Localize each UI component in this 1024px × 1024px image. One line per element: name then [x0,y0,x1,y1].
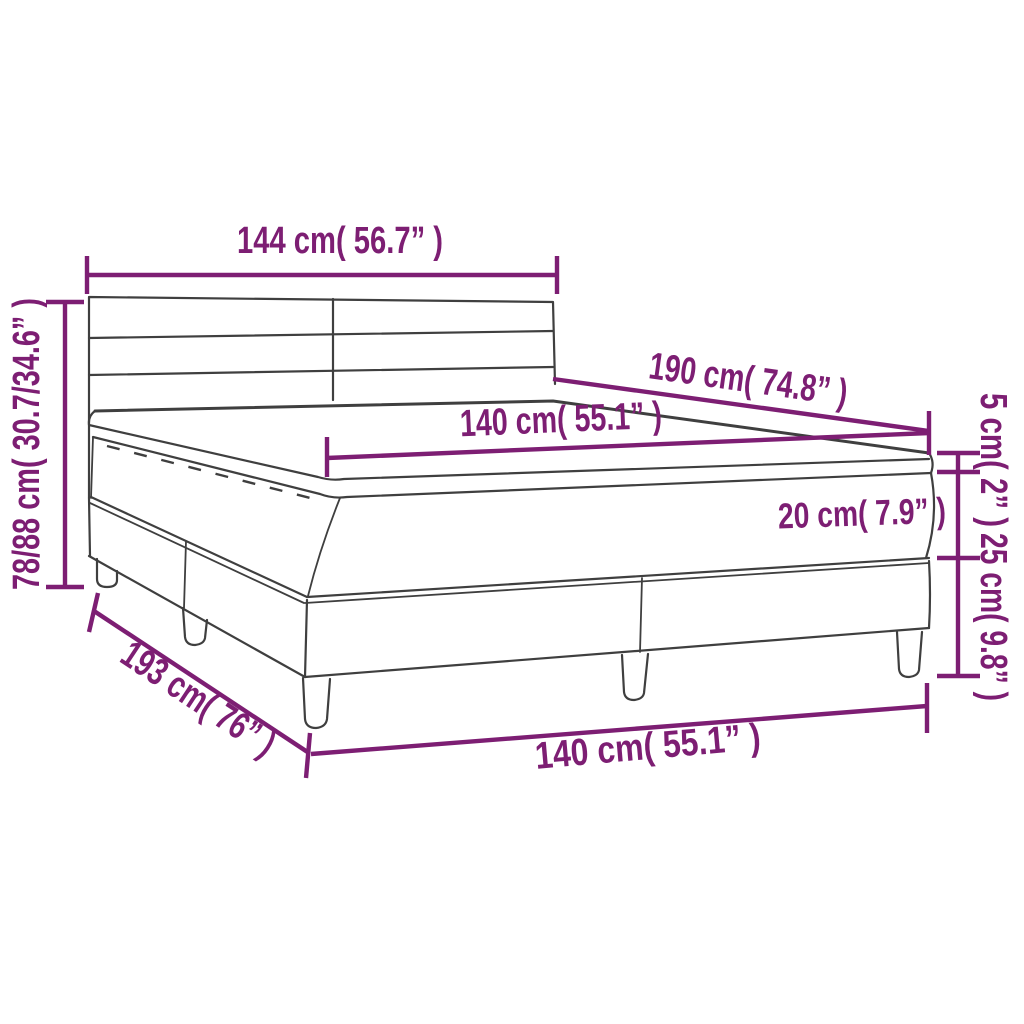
bed-dimension-drawing: 144 cm( 56.7” ) 78/88 cm( 30.7/34.6” ) 1… [0,0,1024,1024]
mattress-width-label: 140 cm( 55.1” ) [459,395,663,446]
base-foot-top-welt-inner [305,563,929,603]
base-foot-bottom-edge [305,628,929,677]
base-side-seam [184,541,186,608]
base-front-corner-edge [305,600,307,677]
tick [306,733,310,778]
base-side-top-welt-inner [90,503,304,603]
bed-leg-foot-middle [622,654,648,700]
topper-right-end-cap [929,453,933,473]
base-width-label: 140 cm( 55.1” ) [533,716,762,778]
mattress-thickness-label: 20 cm( 7.9” ) [777,490,946,537]
bed-leg-front-corner [303,678,330,728]
dimension-total-height [46,302,84,587]
mattress-left-end-cap [91,437,93,498]
base-right-edge [929,561,930,628]
headboard-slat-line-lower [89,367,553,375]
bed-leg-side-middle [183,608,207,645]
total-height-label: 78/88 cm( 30.7/34.6” ) [6,298,48,590]
dimension-labels: 144 cm( 56.7” ) 78/88 cm( 30.7/34.6” ) 1… [6,220,1014,778]
base-left-end-cap [89,498,90,556]
bed-leg-foot-right [897,632,922,677]
base-length-label: 193 cm( 76” ) [113,633,283,765]
base-side-top-welt [91,497,307,597]
headboard [89,297,555,498]
base-foot-top-welt [307,558,929,597]
headboard-slat-line-upper [89,331,553,338]
product-dimension-diagram: 144 cm( 56.7” ) 78/88 cm( 30.7/34.6” ) 1… [0,0,1024,1024]
mattress-front-corner-edge [308,498,340,596]
headboard-outline [89,297,555,498]
topper-thickness-label: 5 cm( 2” ) [972,393,1014,527]
base-foot-seam [640,578,642,652]
base-height-label: 25 cm( 9.8” ) [972,533,1014,701]
headboard-width-label: 144 cm( 56.7” ) [237,220,443,262]
topper-bottom-edge [93,437,931,498]
